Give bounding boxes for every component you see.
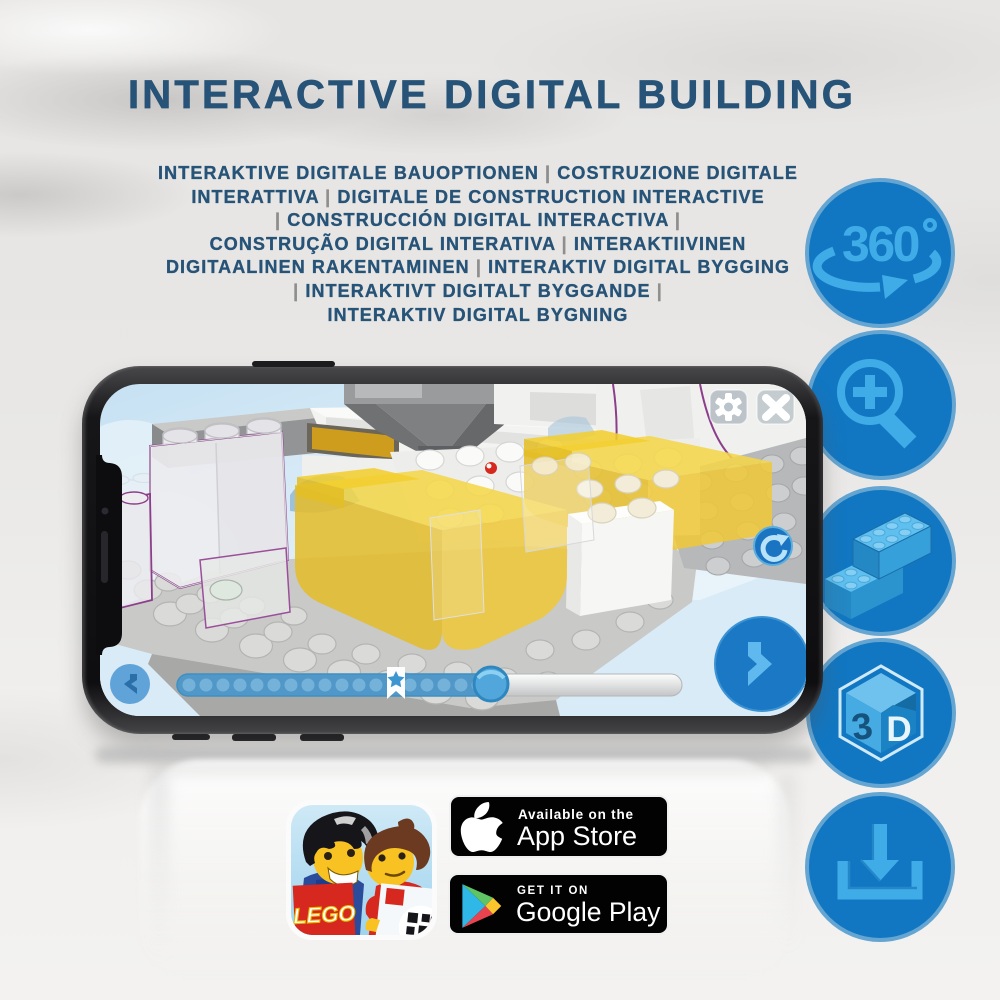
svg-text:D: D	[886, 710, 911, 749]
svg-text:LEGO: LEGO	[292, 900, 356, 928]
svg-text:360: 360	[842, 216, 919, 272]
